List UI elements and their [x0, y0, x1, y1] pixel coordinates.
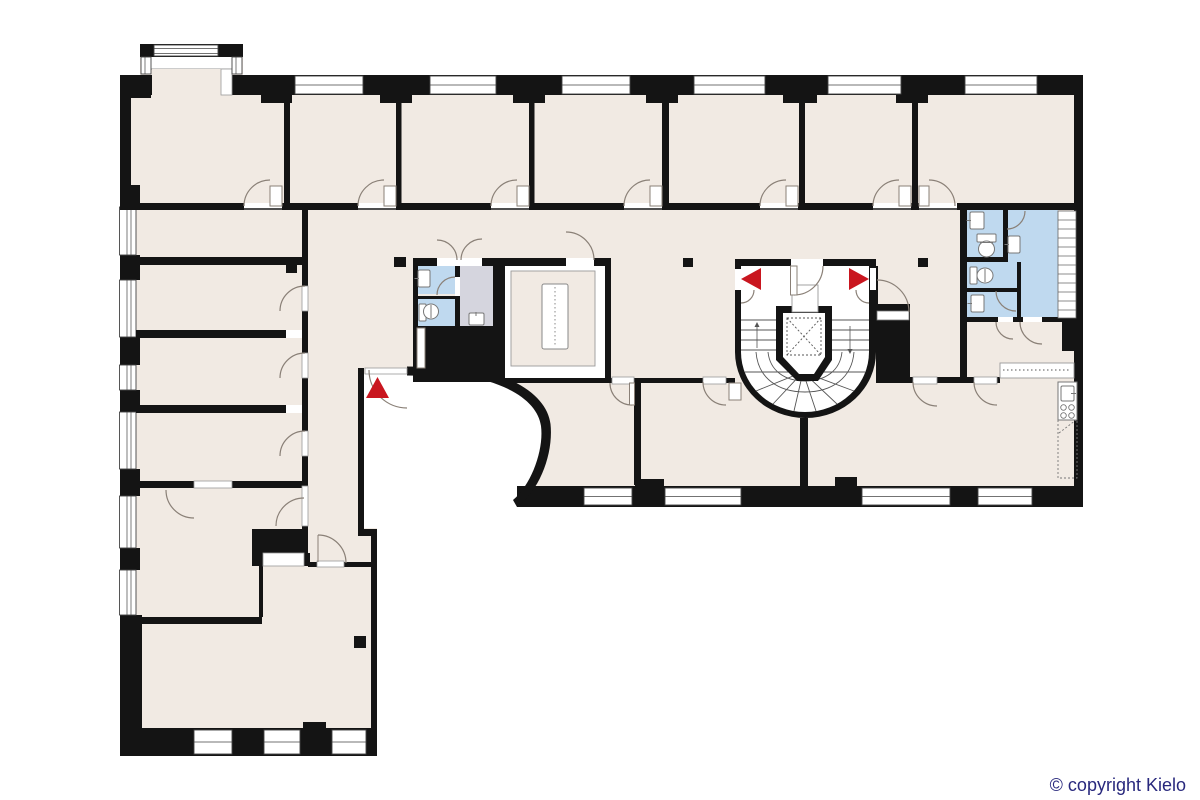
svg-text:© copyright Kielo: © copyright Kielo: [1050, 775, 1186, 795]
